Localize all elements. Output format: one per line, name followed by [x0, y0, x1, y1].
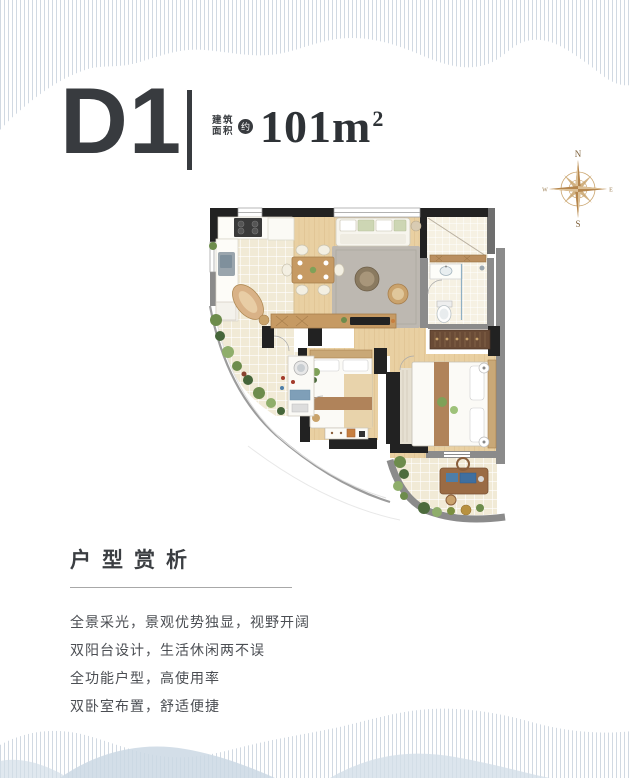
svg-text:E: E [609, 188, 613, 194]
area-value: 101m2 [260, 100, 384, 153]
floor-plan [204, 202, 510, 528]
feature-item: 双阳台设计，生活休闲两不误 [70, 636, 310, 664]
svg-text:W: W [542, 188, 548, 194]
section-rule [70, 587, 292, 588]
svg-text:N: N [575, 149, 582, 159]
approx-badge: 约 [238, 119, 253, 134]
header-divider [187, 90, 192, 170]
area-block: 建筑 面积 约 101m2 [212, 100, 384, 152]
feature-item: 全景采光，景观优势独显，视野开阔 [70, 608, 310, 636]
area-label: 建筑 面积 [212, 115, 234, 137]
svg-text:S: S [575, 219, 580, 228]
feature-list: 全景采光，景观优势独显，视野开阔 双阳台设计，生活休闲两不误 全功能户型，高使用… [70, 608, 310, 720]
plan-code: D1 [60, 74, 182, 168]
area-exponent: 2 [372, 106, 384, 131]
section-title: 户型赏析 [70, 544, 198, 574]
feature-item: 全功能户型，高使用率 [70, 664, 310, 692]
compass-icon: N S E W [542, 148, 614, 228]
feature-item: 双卧室布置，舒适便捷 [70, 692, 310, 720]
page-root: { "header": { "plan_code": "D1", "area_l… [0, 0, 632, 778]
